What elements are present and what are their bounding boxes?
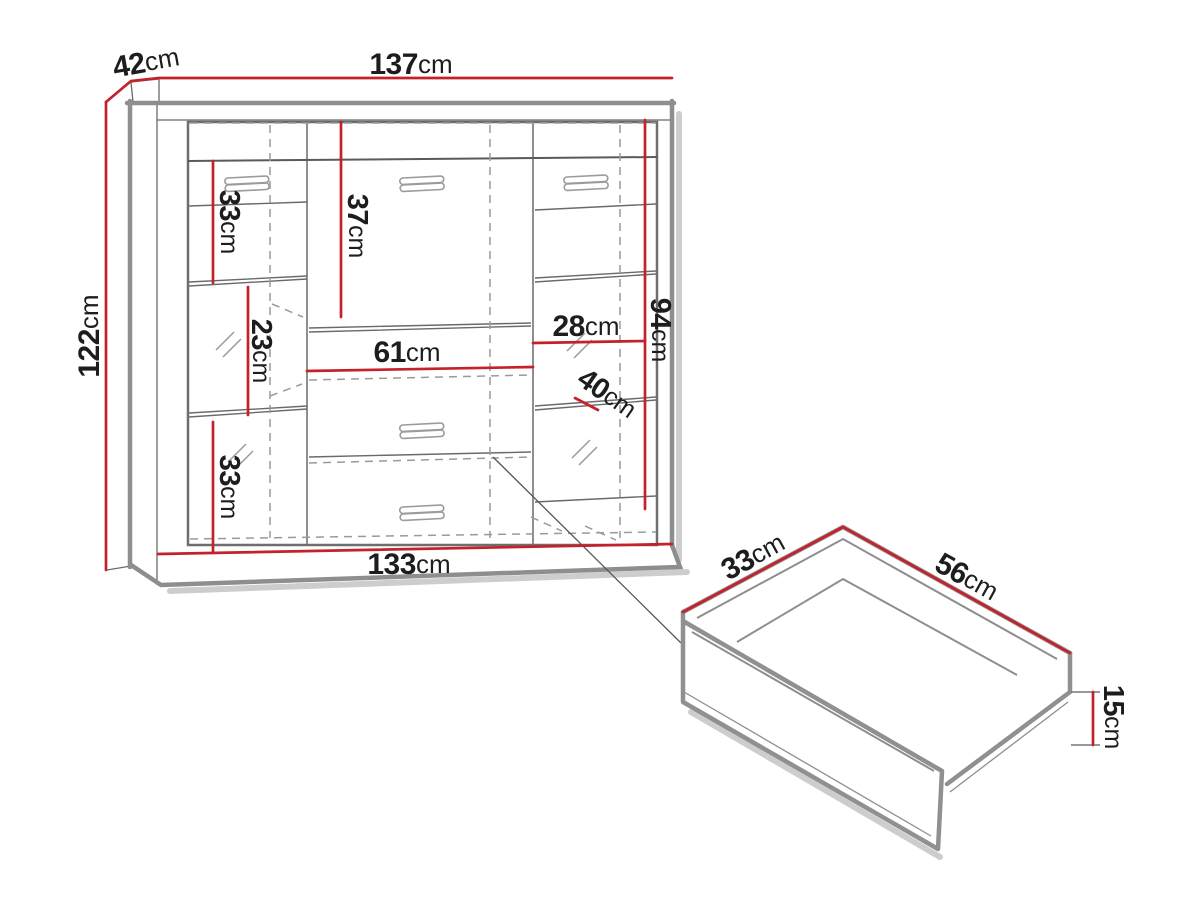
dim-line-niche-61	[307, 367, 533, 371]
right-door-handle	[564, 175, 609, 191]
furniture-dimension-diagram: 42cm 137cm 122cm 133cm 33cm 23cm 33cm 37…	[0, 0, 1200, 900]
label-left-bottom-section: 33cm	[213, 455, 245, 520]
label-cabinet-bottom-width: 133cm	[367, 548, 450, 581]
diagram-canvas: 42cm 137cm 122cm 133cm 33cm 23cm 33cm 37…	[0, 0, 1200, 900]
lower-drawer-handle	[400, 505, 445, 521]
upper-drawer-handle	[400, 423, 445, 439]
label-right-shelf-depth: 40cm	[571, 362, 642, 425]
drawer-drop-shadow	[691, 712, 940, 857]
label-left-top-section: 33cm	[213, 190, 245, 255]
label-center-niche-width: 61cm	[373, 336, 440, 369]
label-cabinet-top-width: 137cm	[369, 48, 452, 81]
label-drawer-height: 15cm	[1097, 685, 1129, 750]
label-left-mid-section: 23cm	[245, 319, 277, 384]
label-right-shelf-width: 28cm	[552, 310, 619, 343]
label-center-door-height: 37cm	[341, 194, 373, 259]
dim-line-depth-and-width	[106, 78, 672, 102]
dim-line-right-28	[533, 341, 645, 343]
center-door-handle	[400, 176, 445, 192]
cabinet-top-shelf	[188, 157, 657, 161]
drawer-extension-lines	[1071, 692, 1100, 745]
label-cabinet-height: 122cm	[73, 294, 106, 377]
drawer-leader-line	[493, 457, 681, 643]
label-drawer-width: 56cm	[930, 546, 1005, 607]
dimension-labels: 42cm 137cm 122cm 133cm 33cm 23cm 33cm 37…	[73, 40, 1130, 749]
label-right-section-height: 94cm	[644, 298, 676, 363]
